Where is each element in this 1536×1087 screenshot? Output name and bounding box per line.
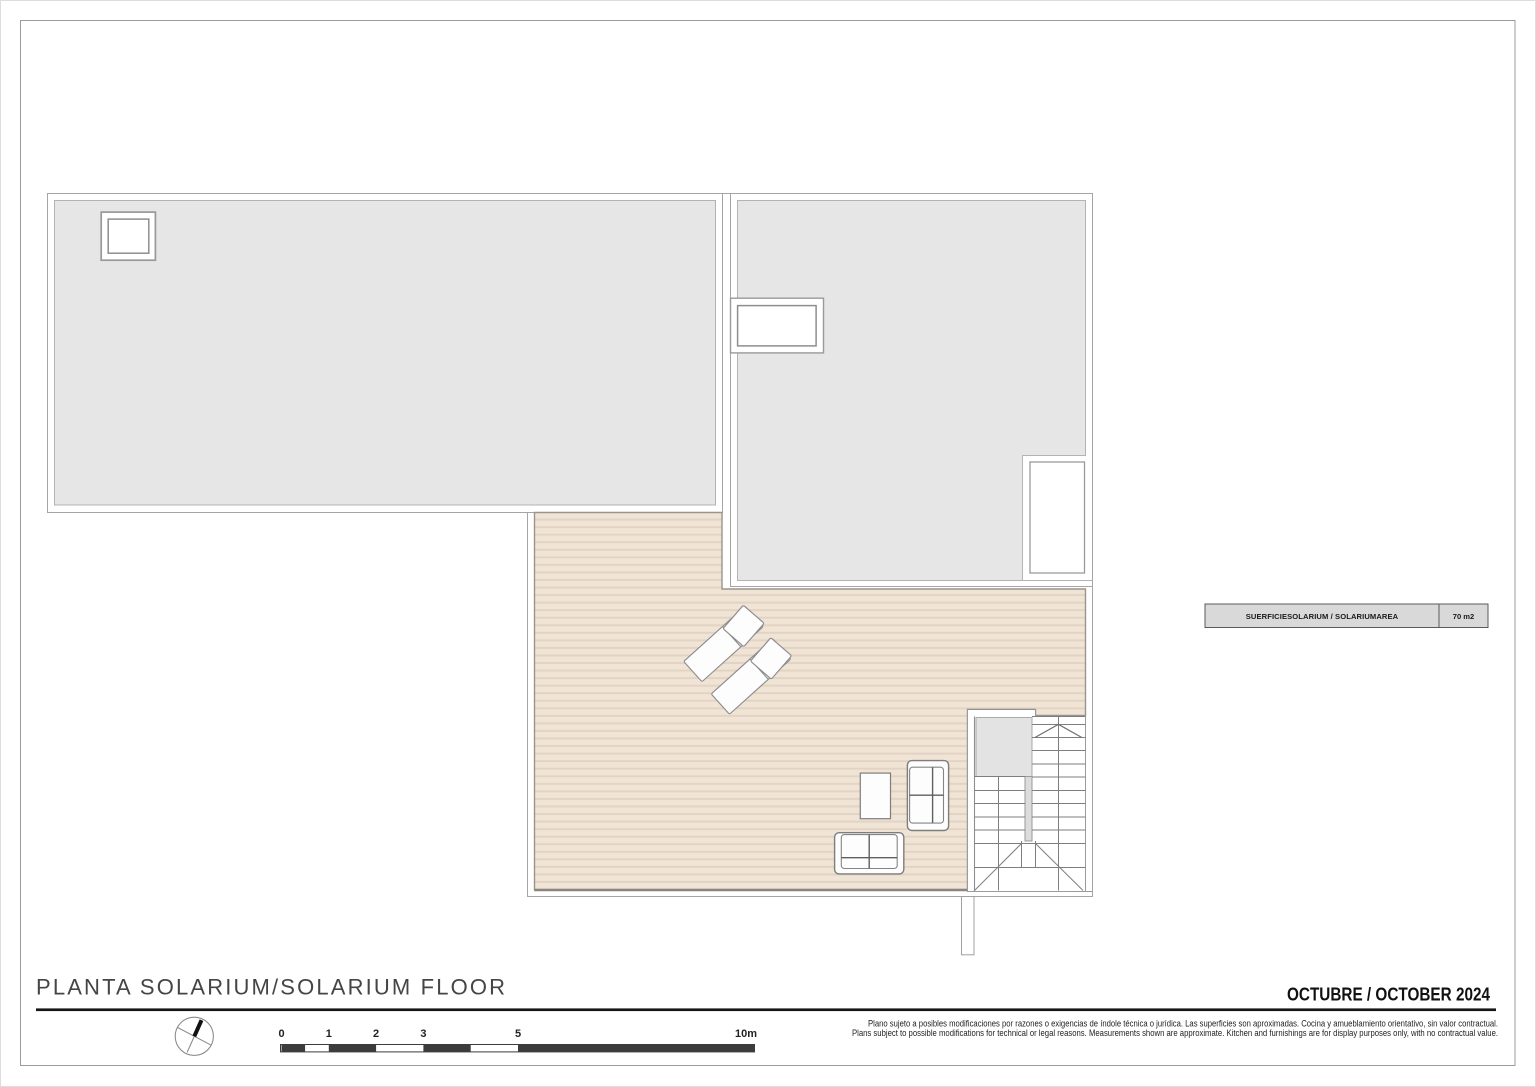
svg-text:PLANTA SOLARIUM/SOLARIUM FLOOR: PLANTA SOLARIUM/SOLARIUM FLOOR	[36, 975, 507, 1000]
svg-text:70 m2: 70 m2	[1453, 612, 1475, 621]
svg-text:OCTUBRE / OCTOBER 2024: OCTUBRE / OCTOBER 2024	[1287, 984, 1491, 1005]
svg-text:2: 2	[373, 1028, 379, 1040]
svg-text:0: 0	[278, 1028, 284, 1040]
svg-text:SUERFICIESOLARIUM / SOLARIUMAR: SUERFICIESOLARIUM / SOLARIUMAREA	[1246, 612, 1399, 621]
svg-text:1: 1	[326, 1028, 332, 1040]
svg-text:3: 3	[420, 1028, 426, 1040]
svg-text:10m: 10m	[735, 1028, 757, 1040]
svg-text:5: 5	[515, 1028, 521, 1040]
svg-text:Plans subject to possible modi: Plans subject to possible modifications …	[852, 1028, 1498, 1038]
svg-text:Plano sujeto a posibles modifi: Plano sujeto a posibles modificaciones p…	[868, 1019, 1498, 1029]
